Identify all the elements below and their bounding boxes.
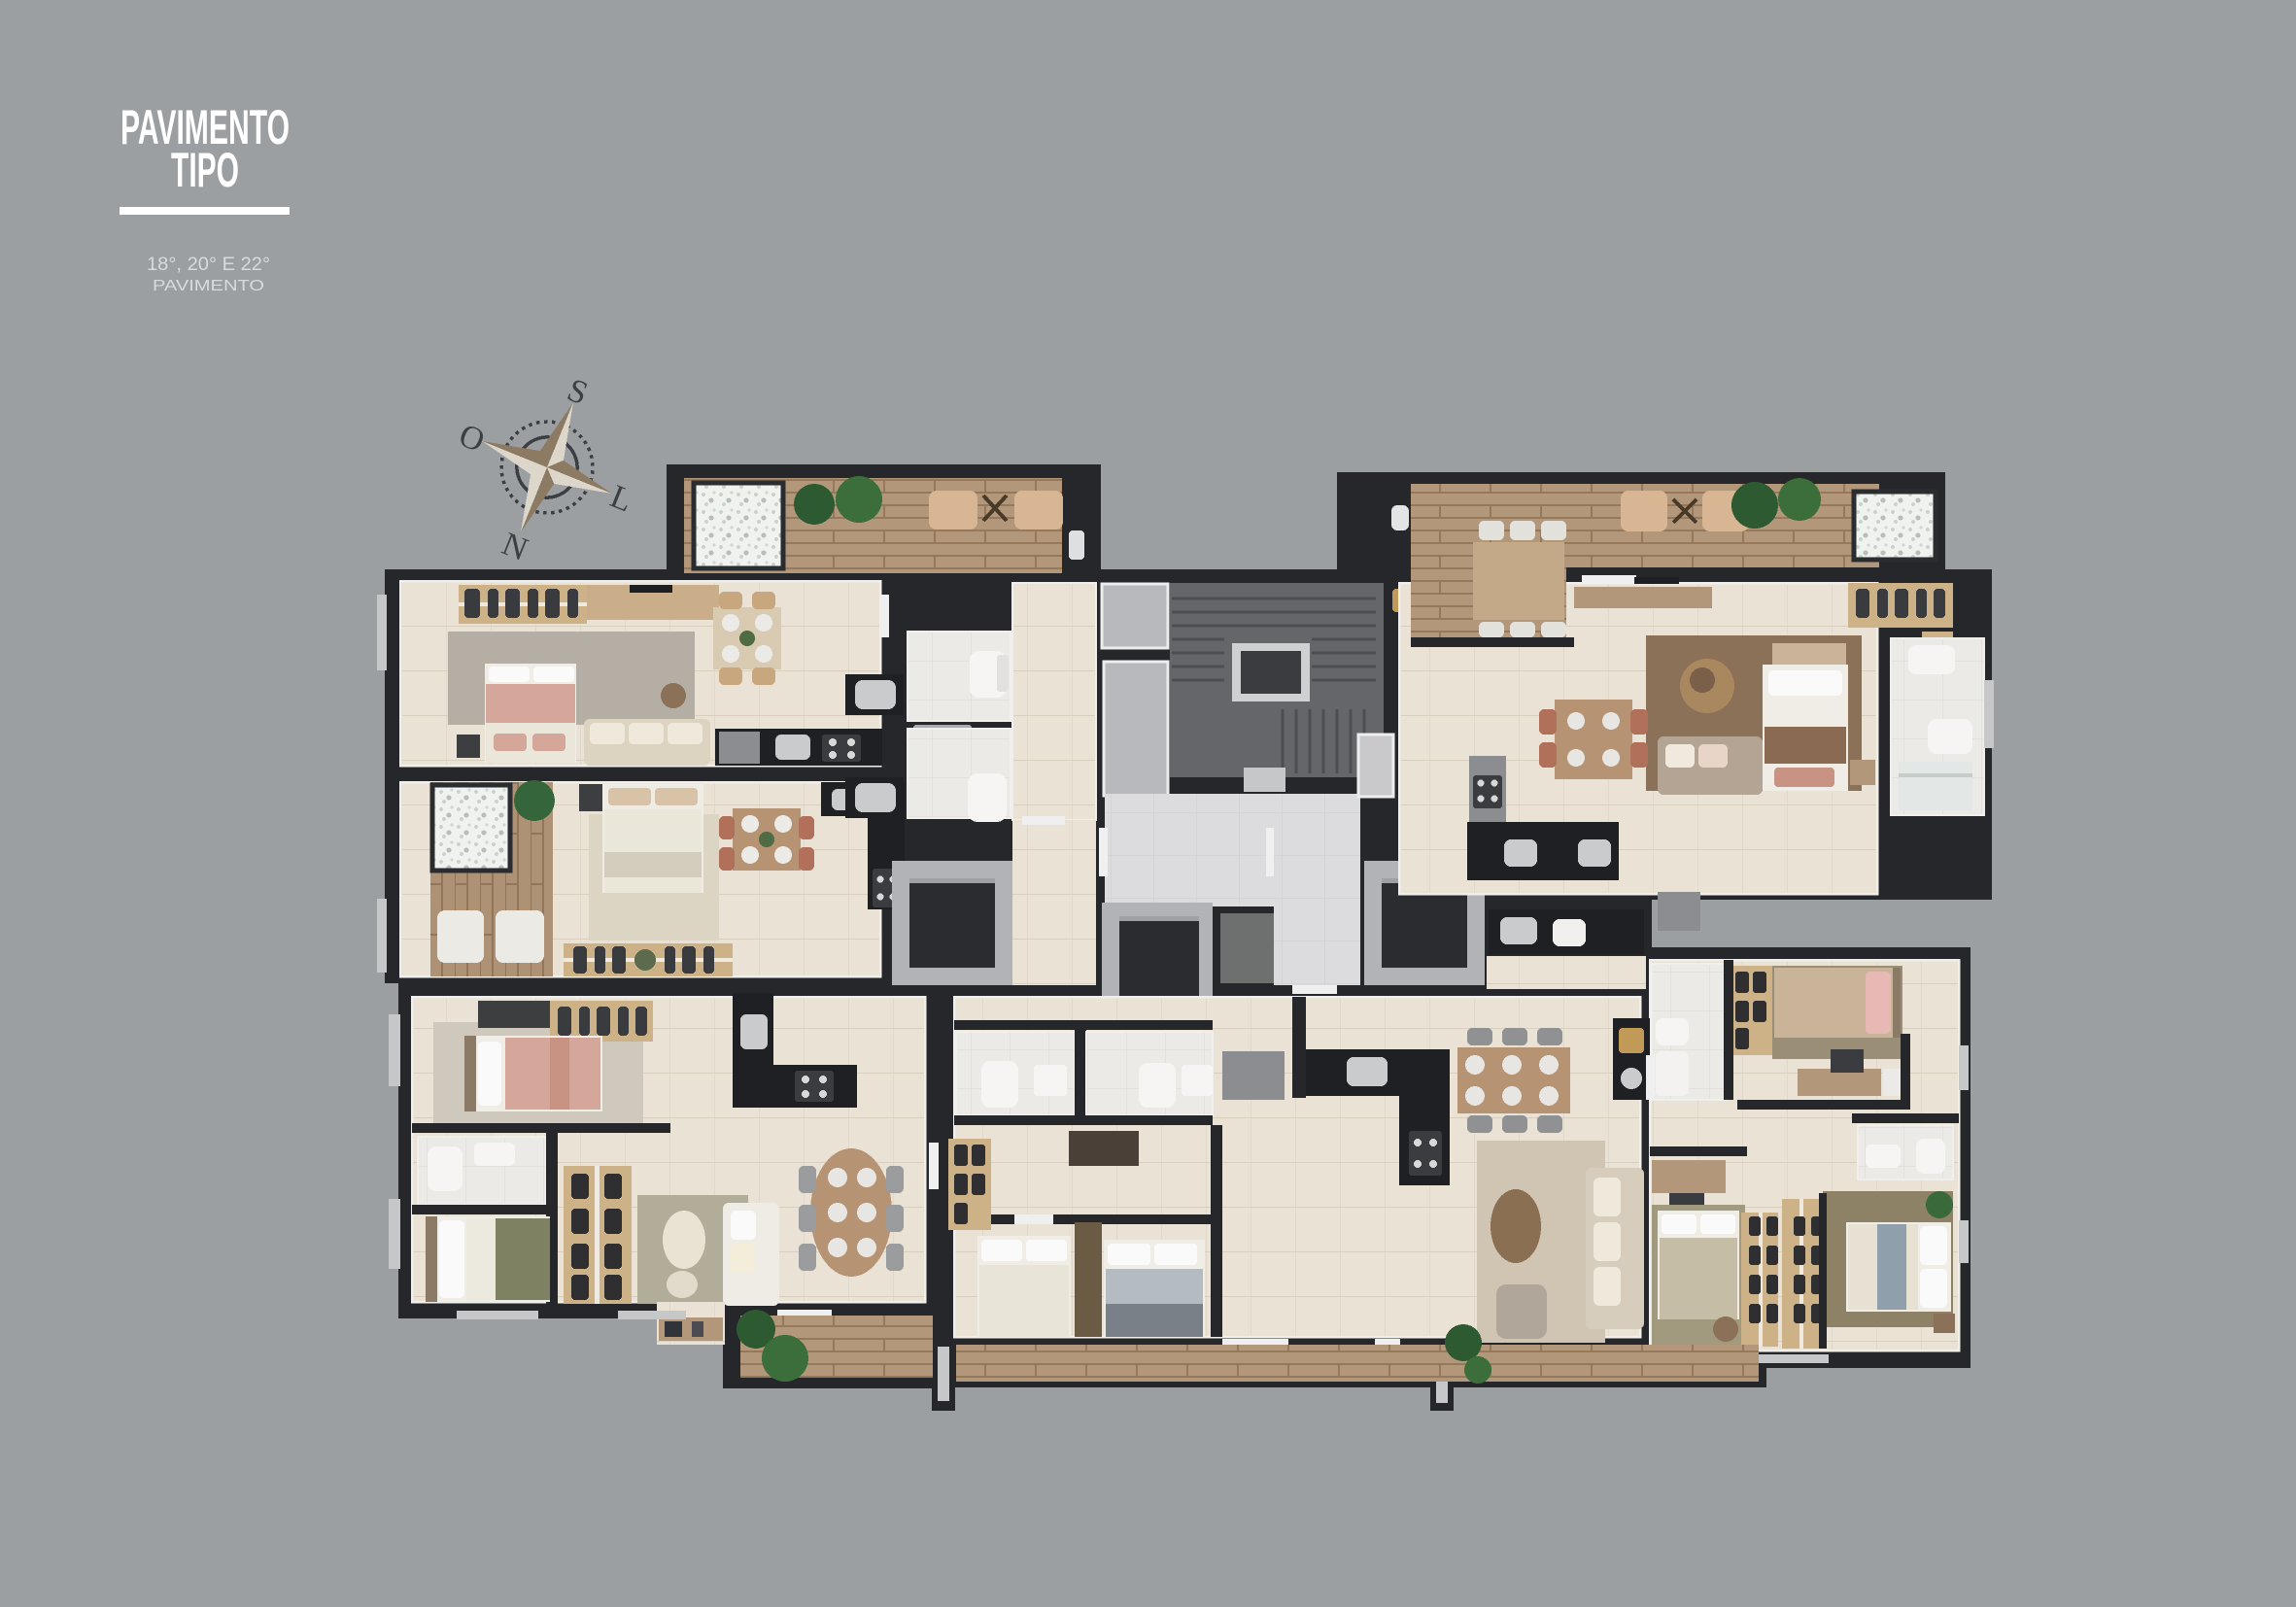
svg-text:18°, 20° E 22°: 18°, 20° E 22°	[147, 255, 270, 275]
svg-text:TIPO: TIPO	[171, 143, 239, 197]
svg-text:PAVIMENTO: PAVIMENTO	[153, 278, 264, 294]
